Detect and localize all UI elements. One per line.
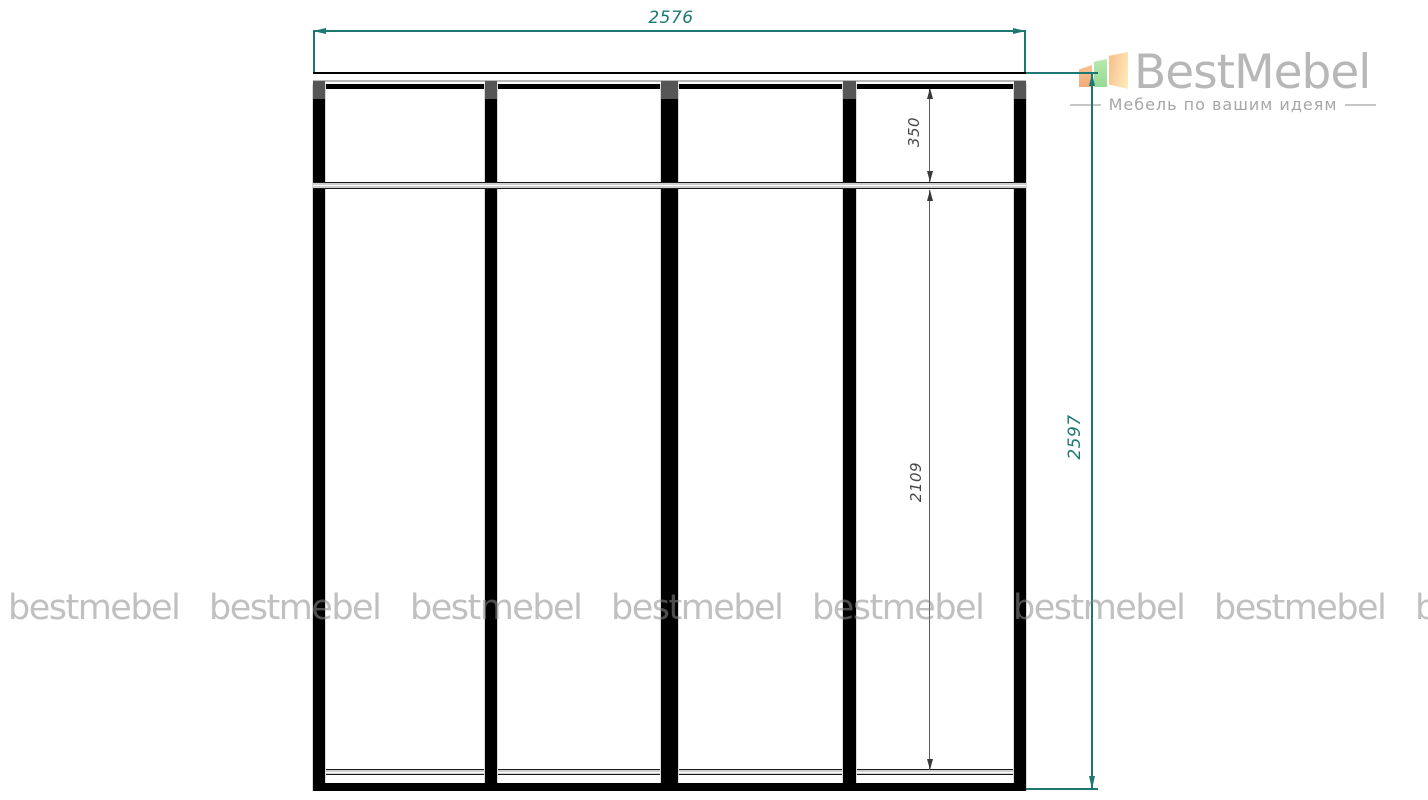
panel-joint-cap <box>1014 81 1026 99</box>
tagline-dash-right <box>1345 104 1376 106</box>
watermark-text: bestmebel <box>209 589 380 627</box>
watermark-text: bestmebel <box>410 589 581 627</box>
watermark-text: bestmebel <box>611 589 782 627</box>
watermark-text: bestmebel <box>1214 589 1385 627</box>
tagline-dash-left <box>1070 104 1101 106</box>
watermark-text: bestmebel <box>8 589 179 627</box>
brand-tagline-row: Мебель по вашим идеям <box>1077 95 1369 114</box>
wardrobe-upper-shelf <box>313 182 1026 189</box>
dimension-height-extension-bottom <box>1026 788 1098 790</box>
arrowhead-down-icon <box>927 759 933 770</box>
wardrobe-partition-2 <box>843 84 856 791</box>
dimension-width-extension-right <box>1024 31 1026 72</box>
dimension-top-section-line <box>929 89 930 182</box>
dimension-width-extension-left <box>313 31 315 72</box>
dimension-height-extension-top <box>1026 72 1098 74</box>
wardrobe-partition-center <box>661 84 678 791</box>
arrowhead-down-icon <box>927 171 933 182</box>
watermark-text: bestmebel <box>1415 589 1428 627</box>
wardrobe-side-panel-right <box>1014 84 1026 791</box>
panel-joint-cap <box>485 81 497 99</box>
wardrobe-base-panel <box>313 783 1026 791</box>
arrowhead-down-icon <box>1089 776 1095 789</box>
brand-name: BestMebel <box>1134 48 1370 98</box>
watermark-text: bestmebel <box>812 589 983 627</box>
arrowhead-right-icon <box>1013 28 1026 34</box>
panel-joint-cap <box>843 81 856 99</box>
wardrobe-drawing-canvas: BestMebel Мебель по вашим идеям 2576 259… <box>0 0 1428 800</box>
panel-joint-cap <box>313 81 325 99</box>
wardrobe-partition-1 <box>485 84 497 791</box>
dimension-height-label: 2597 <box>1066 397 1084 477</box>
wardrobe-top-panel-edge <box>313 72 1026 74</box>
dimension-lower-section-line <box>929 190 930 770</box>
arrowhead-up-icon <box>927 88 933 99</box>
brand-tagline: Мебель по вашим идеям <box>1109 95 1338 114</box>
dimension-top-section-label: 350 <box>905 92 923 172</box>
dimension-width-label: 2576 <box>631 9 711 27</box>
panel-joint-cap <box>661 81 678 99</box>
wardrobe-side-panel-left <box>313 84 325 791</box>
dimension-height-line <box>1091 73 1093 789</box>
logo-bar-yellow-icon <box>1109 52 1128 89</box>
arrowhead-left-icon <box>313 28 326 34</box>
dimension-width-line <box>313 30 1026 32</box>
dimension-lower-section-label: 2109 <box>907 442 925 522</box>
watermark-text: bestmebel <box>1013 589 1184 627</box>
brand-logo: BestMebel Мебель по вашим идеям <box>1076 48 1376 118</box>
arrowhead-up-icon <box>1089 73 1095 86</box>
arrowhead-up-icon <box>927 190 933 201</box>
